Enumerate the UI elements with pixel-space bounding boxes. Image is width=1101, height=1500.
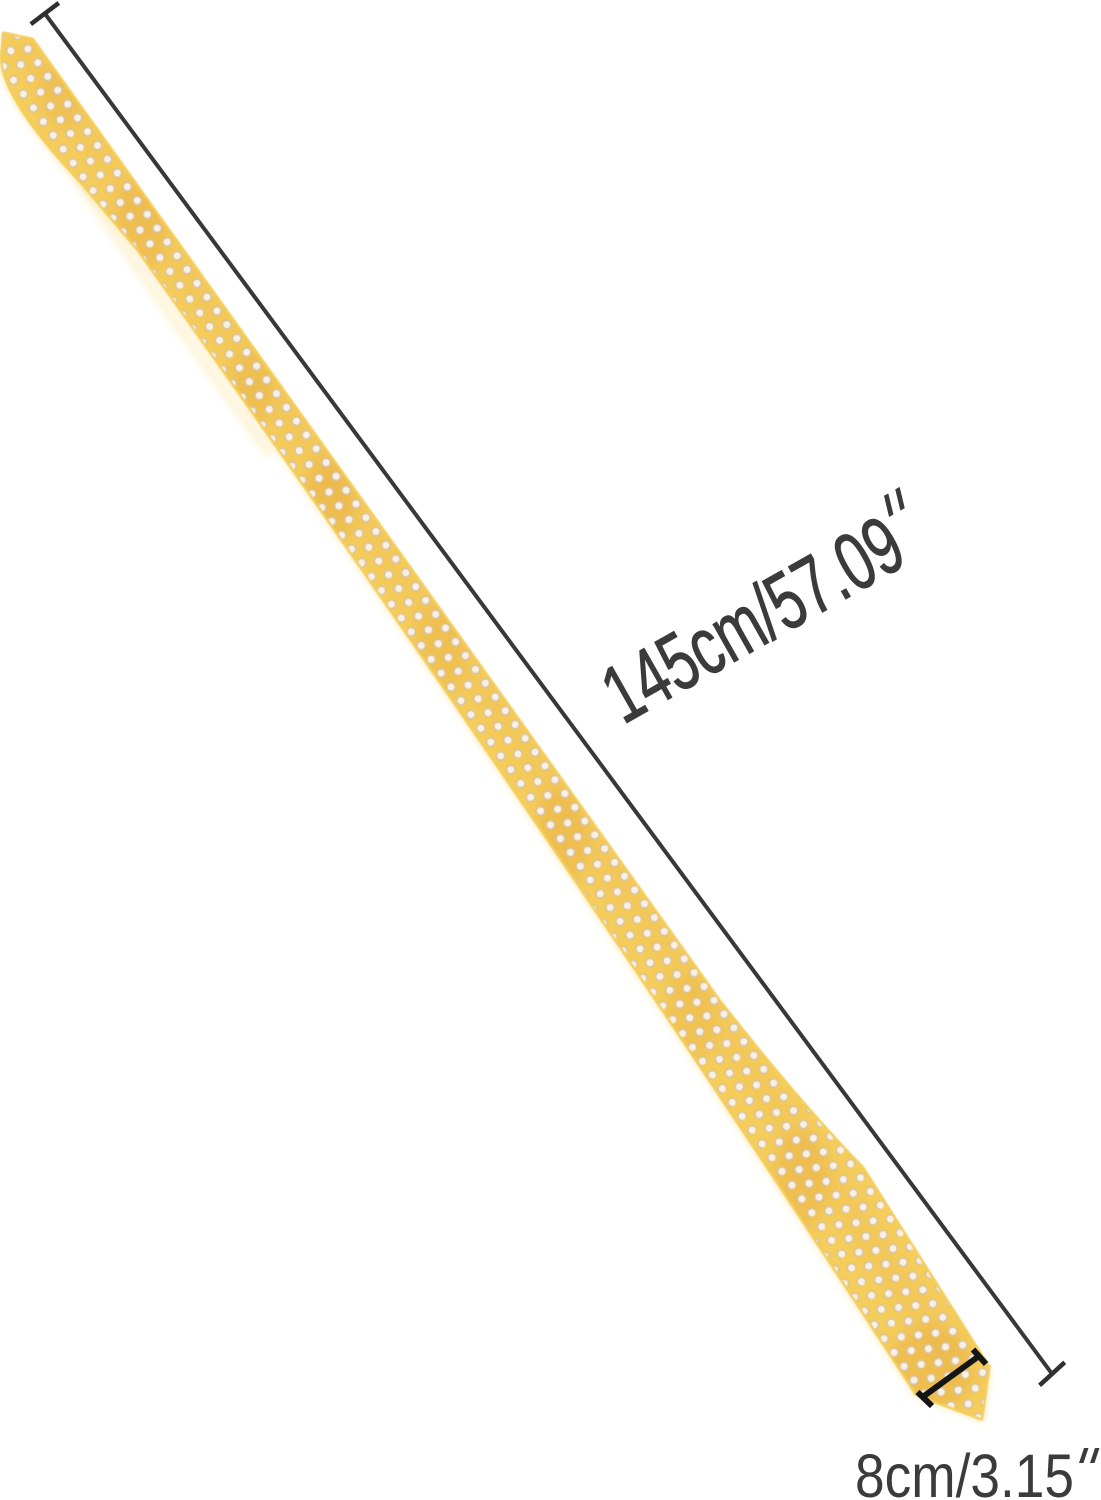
svg-text:145cm/57.09: 145cm/57.09 [587, 499, 919, 741]
svg-text:8cm/3.15: 8cm/3.15 [855, 1442, 1074, 1500]
